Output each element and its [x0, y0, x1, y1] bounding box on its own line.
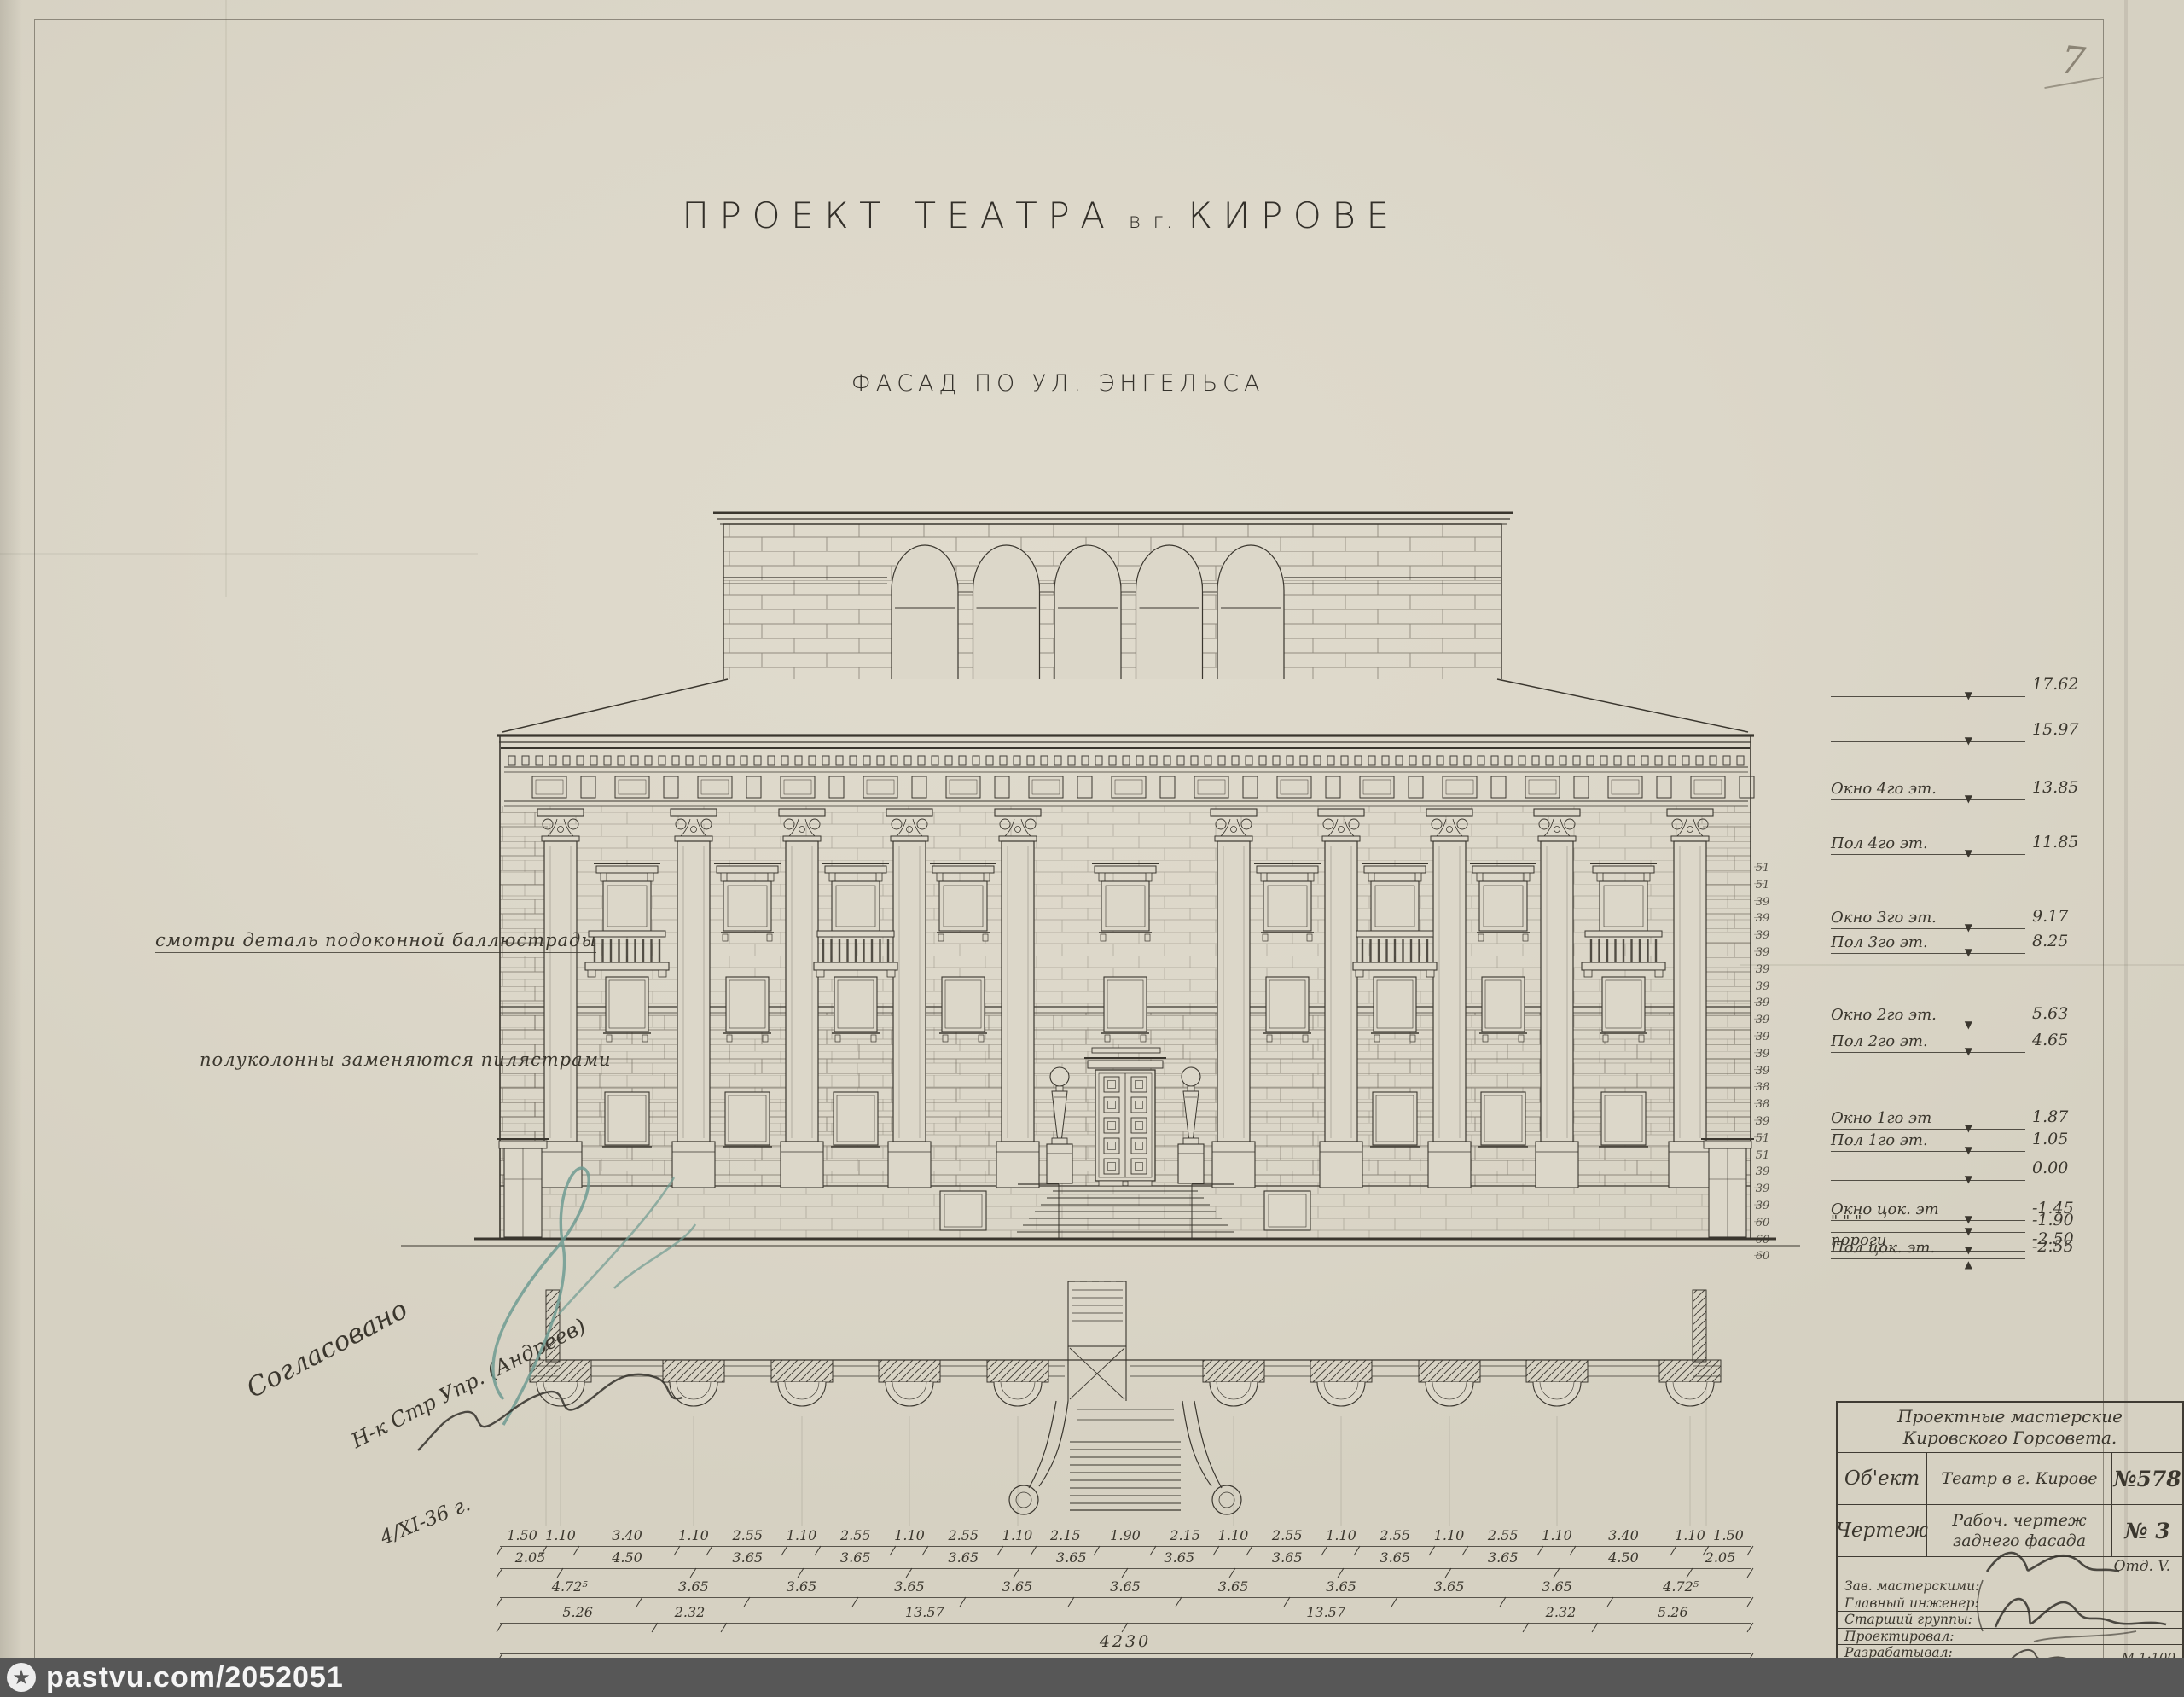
- dimension-row: 4.72⁵3.653.653.653.653.653.653.653.653.6…: [500, 1577, 1751, 1598]
- main-cornice: [497, 735, 1754, 806]
- elevation-value: -1.90: [2032, 1211, 2074, 1229]
- course-height: 39: [1747, 1113, 1778, 1130]
- elevation-mark: ▼0.00: [1831, 1161, 2025, 1181]
- elevation-value: 1.87: [2032, 1107, 2068, 1126]
- title-mid: в г.: [1129, 208, 1176, 233]
- dimension-segment: 1.10: [1541, 1526, 1573, 1546]
- course-height: 39: [1747, 1181, 1778, 1198]
- dimension-segment: 4.50: [1557, 1548, 1690, 1568]
- hipped-roof: [502, 679, 1748, 732]
- course-height: 60: [1747, 1232, 1778, 1249]
- dimension-segment: 1.10: [1217, 1526, 1249, 1546]
- dimension-value: 2.15: [1034, 1527, 1098, 1543]
- dimension-segment: 3.65: [1018, 1548, 1125, 1568]
- dimension-value: 1.10: [1001, 1527, 1033, 1543]
- dimension-segment: 1.10: [893, 1526, 926, 1546]
- course-height: 60: [1747, 1248, 1778, 1265]
- dimension-segment: 1.10: [677, 1526, 710, 1546]
- elevation-mark: Окно 1го эт▼1.87: [1831, 1110, 2025, 1130]
- dimension-segment: 5.26: [500, 1602, 655, 1623]
- dimension-segment: 3.65: [1287, 1577, 1396, 1597]
- dimension-value: 3.65: [1233, 1549, 1340, 1566]
- dimension-value: 4.50: [1557, 1549, 1690, 1566]
- elevation-value: 0.00: [2032, 1159, 2068, 1177]
- dimension-value: 1.10: [1217, 1527, 1249, 1543]
- dimension-segment: 3.65: [747, 1577, 856, 1597]
- title-city: КИРОВЕ: [1188, 195, 1400, 236]
- elevation-mark: Пол 3го эт.▼8.25: [1831, 934, 2025, 954]
- dimension-value: 2.05: [1690, 1549, 1751, 1566]
- elevation-label: Окно 2го эт.: [1831, 1006, 1937, 1024]
- course-height: 60: [1747, 1215, 1778, 1232]
- dimension-segment: 2.55: [1250, 1526, 1325, 1546]
- dimension-segment: 4230: [500, 1633, 1751, 1653]
- elevation-marker-icon: ▼: [1965, 689, 1972, 701]
- signature-row-label: Проектировал:: [1838, 1629, 2182, 1646]
- stage-tower: [713, 513, 1513, 679]
- course-height: 38: [1747, 1096, 1778, 1113]
- dimension-value: 4.50: [561, 1549, 694, 1566]
- note-balustrade: смотри деталь подоконной баллюстрады: [155, 930, 596, 953]
- dimension-segment: 3.65: [1395, 1577, 1503, 1597]
- dimension-segment: 1.10: [785, 1526, 817, 1546]
- course-height: 39: [1747, 927, 1778, 944]
- title-block: Проектные мастерские Кировского Горсовет…: [1836, 1401, 2184, 1674]
- dimension-value: 3.65: [640, 1578, 748, 1595]
- dimension-value: 1.10: [893, 1527, 926, 1543]
- dimension-segment: 3.65: [963, 1577, 1072, 1597]
- dimension-segment: 5.26: [1595, 1602, 1751, 1623]
- elevation-label: Окно 3го эт.: [1831, 909, 1937, 927]
- dimension-segment: 2.32: [1526, 1602, 1594, 1623]
- dimension-value: 3.65: [802, 1549, 909, 1566]
- elevation-mark: ▼17.62: [1831, 677, 2025, 697]
- elevation-value: 13.85: [2032, 778, 2078, 797]
- dimension-segment: 2.15: [1153, 1526, 1217, 1546]
- dimension-segment: 3.65: [1233, 1548, 1340, 1568]
- dimension-segment: 2.55: [710, 1526, 785, 1546]
- dimension-segment: 1.10: [1001, 1526, 1033, 1546]
- course-height: 51: [1747, 860, 1778, 877]
- dimension-row: 2.054.503.653.653.653.653.653.653.653.65…: [500, 1548, 1751, 1569]
- dimension-value: 4.72⁵: [1611, 1578, 1751, 1595]
- dimension-segment: 3.40: [1573, 1526, 1674, 1546]
- object-value: Театр в г. Кирове: [1927, 1453, 2112, 1504]
- drawing-value: Рабоч. чертеж заднего фасада: [1927, 1505, 2112, 1556]
- elevation-marker-icon: ▼: [1965, 1019, 1972, 1031]
- dimension-segment: 3.40: [577, 1526, 677, 1546]
- dimension-value: 2.55: [818, 1527, 893, 1543]
- dimension-value: 13.57: [1125, 1604, 1526, 1620]
- dimension-segment: 3.65: [1503, 1577, 1612, 1597]
- elevation-marker-icon: ▼: [1965, 1144, 1972, 1156]
- elevation-value: 15.97: [2032, 720, 2078, 739]
- course-height: 51: [1747, 877, 1778, 894]
- elevation-mark: ▼15.97: [1831, 723, 2025, 742]
- dimension-value: 2.15: [1153, 1527, 1217, 1543]
- dimension-segment: 3.65: [856, 1577, 964, 1597]
- elevation-label: Пол 3го эт.: [1831, 933, 1928, 951]
- course-height: 39: [1747, 995, 1778, 1012]
- elevation-marker-icon: ▲: [1965, 1258, 1972, 1270]
- dimension-value: 3.65: [694, 1549, 801, 1566]
- dimension-segment: 1.10: [1674, 1526, 1706, 1546]
- dimension-value: 1.90: [1097, 1527, 1153, 1543]
- dimension-segment: 1.50: [1706, 1526, 1751, 1546]
- course-height: 39: [1747, 962, 1778, 979]
- dimension-segment: 3.65: [909, 1548, 1017, 1568]
- dimension-value: 13.57: [724, 1604, 1125, 1620]
- dimension-row: 4230: [500, 1633, 1751, 1654]
- object-label: Об'ект: [1838, 1453, 1927, 1504]
- dimension-segment: 2.15: [1034, 1526, 1098, 1546]
- elevation-marker-icon: ▼: [1965, 1173, 1972, 1185]
- drawing-title: ПРОЕКТ ТЕАТРА в г. КИРОВЕ: [0, 195, 2082, 236]
- dimension-value: 4.72⁵: [500, 1578, 640, 1595]
- elevation-value: 17.62: [2032, 675, 2078, 694]
- course-height: 39: [1747, 979, 1778, 996]
- dimension-row: 1.501.103.401.102.551.102.551.102.551.10…: [500, 1526, 1751, 1547]
- dimension-value: 2.55: [710, 1527, 785, 1543]
- course-height: 51: [1747, 1148, 1778, 1165]
- elevation-label: Пол 4го эт.: [1831, 834, 1928, 852]
- elevation-label: " " ": [1831, 1212, 1862, 1230]
- course-height: 39: [1747, 894, 1778, 911]
- elevation-mark: Пол 2го эт.▼4.65: [1831, 1033, 2025, 1053]
- title-block-drawing-row: Чертеж Рабоч. чертеж заднего фасада № 3: [1838, 1505, 2182, 1557]
- dimension-value: 3.65: [909, 1549, 1017, 1566]
- dimension-row: 5.262.3213.5713.572.325.26: [500, 1602, 1751, 1624]
- elevation-value: 9.17: [2032, 907, 2068, 926]
- course-height: 39: [1747, 1198, 1778, 1215]
- dimension-value: 1.10: [1674, 1527, 1706, 1543]
- course-height: 39: [1747, 944, 1778, 962]
- dimension-value: 1.10: [1325, 1527, 1357, 1543]
- elevation-mark: Пол цок. эт.▲-2.55: [1831, 1240, 2025, 1259]
- elevation-label: Окно 1го эт: [1831, 1109, 1931, 1127]
- note-pilasters: полуколонны заменяются пилястрами: [200, 1049, 612, 1072]
- dimension-value: 3.65: [1179, 1578, 1287, 1595]
- dimension-value: 2.05: [500, 1549, 561, 1566]
- title-block-object-row: Об'ект Театр в г. Кирове №578: [1838, 1453, 2182, 1505]
- elevation-value: -2.55: [2032, 1237, 2074, 1256]
- elevation-mark: Пол 1го эт.▼1.05: [1831, 1132, 2025, 1152]
- elevation-mark: Окно 2го эт.▼5.63: [1831, 1007, 2025, 1026]
- dimension-value: 3.65: [1395, 1578, 1503, 1595]
- dimension-segment: 4.50: [561, 1548, 694, 1568]
- dimension-segment: 13.57: [724, 1602, 1125, 1623]
- dimension-segment: 2.55: [1466, 1526, 1541, 1546]
- course-height: 39: [1747, 1029, 1778, 1046]
- title-main: ПРОЕКТ ТЕАТРА: [682, 195, 1115, 236]
- course-height: 51: [1747, 1130, 1778, 1148]
- drawing-subtitle: ФАСАД ПО УЛ. ЭНГЕЛЬСА: [0, 370, 2116, 397]
- dimension-value: 1.10: [1432, 1527, 1465, 1543]
- elevation-label: Окно 4го эт.: [1831, 780, 1937, 798]
- dimension-value: 3.65: [856, 1578, 964, 1595]
- elevation-value: 5.63: [2032, 1004, 2068, 1023]
- dimension-value: 3.65: [963, 1578, 1072, 1595]
- dimension-value: 3.40: [577, 1527, 677, 1543]
- elevation-marker-icon: ▼: [1965, 735, 1972, 747]
- dimension-value: 2.55: [1357, 1527, 1432, 1543]
- elevation-value: 1.05: [2032, 1130, 2068, 1148]
- dimension-value: 3.40: [1573, 1527, 1674, 1543]
- pencil-page-number: 7: [2059, 38, 2087, 84]
- dimension-value: 3.65: [1287, 1578, 1396, 1595]
- course-height: 39: [1747, 1164, 1778, 1181]
- dimension-segment: 1.10: [1325, 1526, 1357, 1546]
- dimension-value: 3.65: [1449, 1549, 1556, 1566]
- elevation-label: Пол 1го эт.: [1831, 1131, 1928, 1149]
- elevation-marker-icon: ▼: [1965, 946, 1972, 958]
- dimension-segment: 2.55: [926, 1526, 1001, 1546]
- watermark-link[interactable]: pastvu.com/2052051: [46, 1661, 344, 1694]
- org-line1: Проектные мастерские: [1897, 1406, 2123, 1427]
- dimension-segment: 3.65: [1179, 1577, 1287, 1597]
- elevation-label: Пол 2го эт.: [1831, 1032, 1928, 1050]
- elevation-marker-icon: ▼: [1965, 847, 1972, 859]
- drawing-number: № 3: [2112, 1505, 2182, 1556]
- dimension-segment: 2.05: [1690, 1548, 1751, 1568]
- dimension-segment: 3.65: [640, 1577, 748, 1597]
- department-note: Отд. V.: [1838, 1557, 2182, 1578]
- dimension-segment: 1.10: [544, 1526, 577, 1546]
- object-number: №578: [2112, 1453, 2182, 1504]
- dimension-segment: 3.65: [1125, 1548, 1233, 1568]
- blueprint-sheet: ПРОЕКТ ТЕАТРА в г. КИРОВЕ ФАСАД ПО УЛ. Э…: [0, 0, 2184, 1697]
- dimension-segment: 3.65: [1449, 1548, 1556, 1568]
- dimension-value: 3.65: [747, 1578, 856, 1595]
- dimension-value: 3.65: [1018, 1549, 1125, 1566]
- dimension-value: 3.65: [1072, 1578, 1180, 1595]
- dimension-value: 4230: [500, 1632, 1751, 1651]
- elevation-value: 11.85: [2032, 833, 2078, 851]
- approval-signature-black: [401, 1331, 691, 1485]
- dimension-segment: 1.90: [1097, 1526, 1153, 1546]
- course-height: 39: [1747, 1063, 1778, 1080]
- dimension-segment: 3.65: [694, 1548, 801, 1568]
- dimension-value: 1.10: [677, 1527, 710, 1543]
- dimension-value: 3.65: [1125, 1549, 1233, 1566]
- signature-row-label: Зав. мастерскими:: [1838, 1578, 2182, 1595]
- dimension-segment: 3.65: [1341, 1548, 1449, 1568]
- dimension-value: 2.55: [1250, 1527, 1325, 1543]
- course-height-numbers: 5151393939393939393939393938383951513939…: [1747, 860, 1778, 1265]
- dimension-segment: 2.55: [818, 1526, 893, 1546]
- dimension-segment: 3.65: [1072, 1577, 1180, 1597]
- course-height: 39: [1747, 1046, 1778, 1063]
- elevation-marker-icon: ▼: [1965, 1045, 1972, 1057]
- dimension-segment: 2.55: [1357, 1526, 1432, 1546]
- plan-section: [530, 1281, 1721, 1526]
- dimension-segment: 4.72⁵: [1611, 1577, 1751, 1597]
- drawing-label: Чертеж: [1838, 1505, 1927, 1556]
- elevation-mark: Окно 4го эт.▼13.85: [1831, 781, 2025, 800]
- dimension-value: 2.55: [926, 1527, 1001, 1543]
- dimension-value: 2.32: [1526, 1604, 1594, 1620]
- dimension-segment: 2.05: [500, 1548, 561, 1568]
- elevation-mark: Окно 3го эт.▼9.17: [1831, 910, 2025, 929]
- dimension-value: 1.50: [1706, 1527, 1751, 1543]
- course-height: 39: [1747, 1012, 1778, 1029]
- elevation-mark: Пол 4го эт.▼11.85: [1831, 835, 2025, 855]
- dimension-segment: 4.72⁵: [500, 1577, 640, 1597]
- dimension-segment: 2.32: [655, 1602, 723, 1623]
- dimension-value: 3.65: [1503, 1578, 1612, 1595]
- dimension-value: 1.50: [500, 1527, 544, 1543]
- org-line2: Кировского Горсовета.: [1897, 1427, 2123, 1449]
- dimension-value: 1.10: [544, 1527, 577, 1543]
- elevation-marker-icon: ▼: [1965, 921, 1972, 933]
- pastvu-logo-icon: ★: [7, 1663, 36, 1692]
- dimension-value: 3.65: [1341, 1549, 1449, 1566]
- elevation-label: Пол цок. эт.: [1831, 1239, 1935, 1257]
- dimension-value: 2.32: [655, 1604, 723, 1620]
- dimension-value: 2.55: [1466, 1527, 1541, 1543]
- signature-row-label: Главный инженер:: [1838, 1595, 2182, 1613]
- dimension-segment: 1.50: [500, 1526, 544, 1546]
- dimension-value: 1.10: [785, 1527, 817, 1543]
- watermark-bar: ★ pastvu.com/2052051: [0, 1658, 2184, 1697]
- elevation-value: 8.25: [2032, 932, 2068, 950]
- dimension-value: 5.26: [1595, 1604, 1751, 1620]
- dimension-segment: 13.57: [1125, 1602, 1526, 1623]
- dimension-value: 1.10: [1541, 1527, 1573, 1543]
- title-block-organization: Проектные мастерские Кировского Горсовет…: [1838, 1403, 2182, 1453]
- elevation-marker-icon: ▼: [1965, 793, 1972, 805]
- dimension-segment: 3.65: [802, 1548, 909, 1568]
- course-height: 39: [1747, 910, 1778, 927]
- signature-row-label: Старший группы:: [1838, 1612, 2182, 1629]
- elevation-value: 4.65: [2032, 1031, 2068, 1049]
- course-height: 38: [1747, 1079, 1778, 1096]
- dimension-segment: 1.10: [1432, 1526, 1465, 1546]
- dimension-value: 5.26: [500, 1604, 655, 1620]
